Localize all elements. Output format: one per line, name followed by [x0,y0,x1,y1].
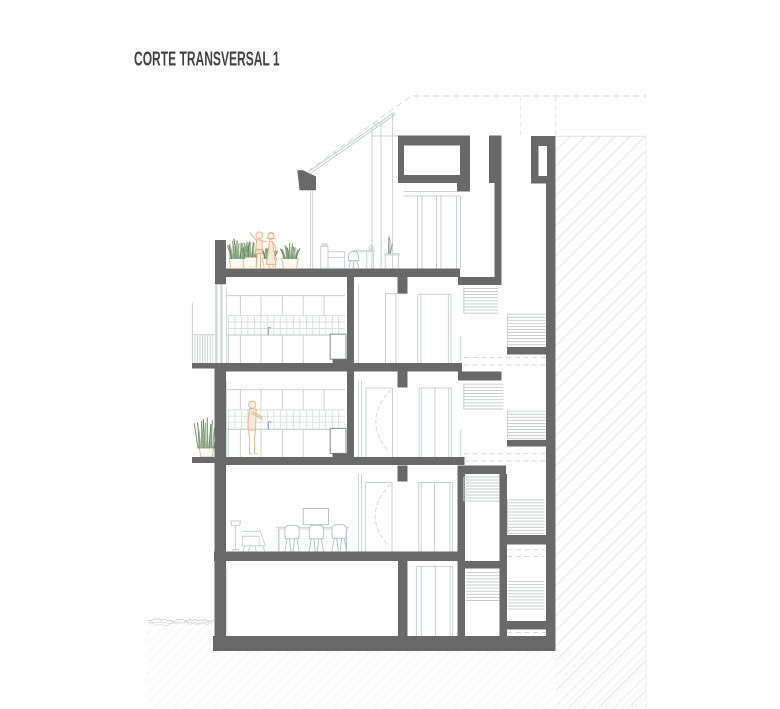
svg-text:CORTE TRANSVERSAL 1: CORTE TRANSVERSAL 1 [134,47,280,70]
